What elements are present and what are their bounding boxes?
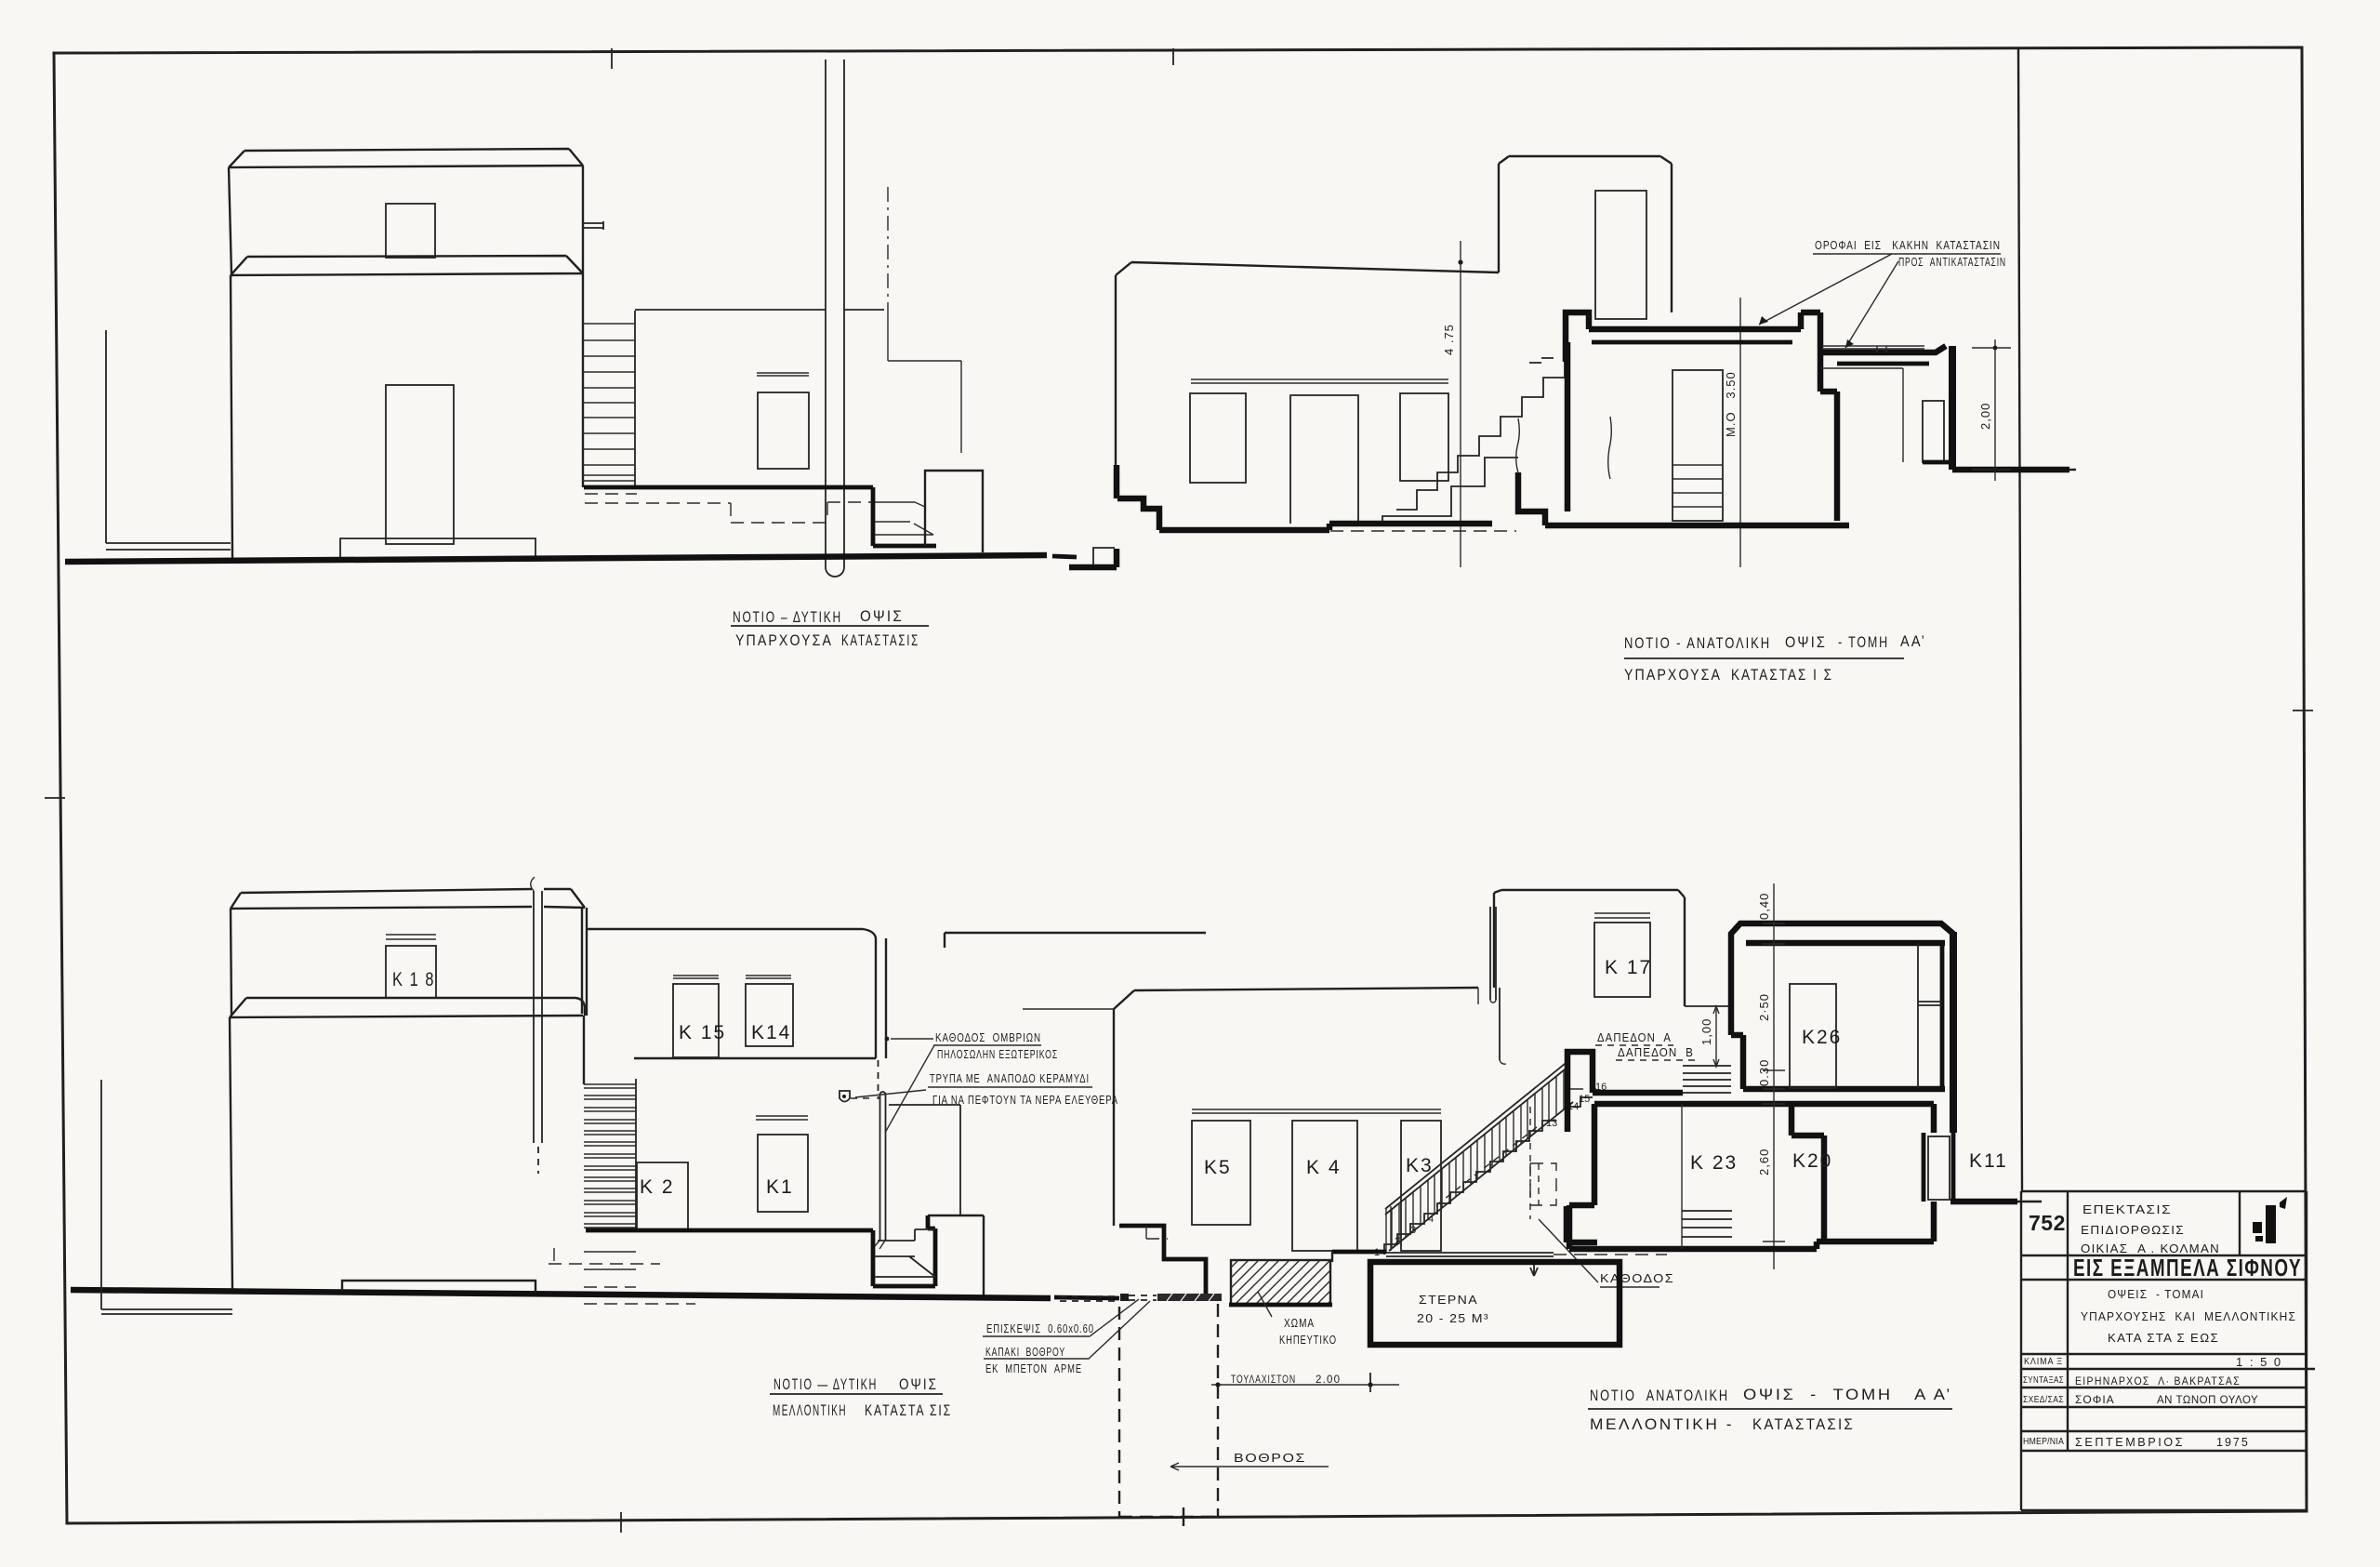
svg-text:ΟΨΕΙΣ - ΤΟΜΑΙ: ΟΨΕΙΣ - ΤΟΜΑΙ <box>2108 1288 2204 1301</box>
svg-text:ΥΠΑΡΧΟΥΣΑ: ΥΠΑΡΧΟΥΣΑ <box>1624 666 1722 684</box>
svg-text:ΟΨΙΣ - ΤΟΜΗ Α Α’: ΟΨΙΣ - ΤΟΜΗ Α Α’ <box>1743 1386 1952 1403</box>
svg-text:1975: 1975 <box>2216 1436 2250 1449</box>
svg-text:ΑΝ ΤΩΝΟΠ ΟΥΛΟΥ: ΑΝ ΤΩΝΟΠ ΟΥΛΟΥ <box>2157 1395 2258 1406</box>
svg-text:2: 2 <box>1395 1236 1400 1247</box>
svg-text:ΧΩΜΑ: ΧΩΜΑ <box>1284 1317 1315 1330</box>
svg-text:2·50: 2·50 <box>1757 993 1771 1021</box>
svg-text:20 - 25 M³: 20 - 25 M³ <box>1417 1312 1489 1325</box>
svg-text:ΚΑΠΑΚΙ ΒΟΘΡΟΥ: ΚΑΠΑΚΙ ΒΟΘΡΟΥ <box>985 1346 1065 1359</box>
svg-text:ΒΟΘΡΟΣ: ΒΟΘΡΟΣ <box>1234 1452 1306 1465</box>
svg-text:0,40: 0,40 <box>1757 893 1771 920</box>
svg-text:ΔΑΠΕΔΟΝ Α: ΔΑΠΕΔΟΝ Α <box>1597 1031 1672 1044</box>
svg-text:K 2: K 2 <box>640 1176 675 1198</box>
svg-text:K1: K1 <box>766 1176 794 1198</box>
svg-text:4 .75: 4 .75 <box>1442 324 1456 355</box>
svg-text:ΚΑΤΑΣΤΑΣ Ι Σ: ΚΑΤΑΣΤΑΣ Ι Σ <box>1731 666 1833 684</box>
svg-text:4: 4 <box>1428 1214 1434 1225</box>
svg-text:ΔΑΠΕΔΟΝ Β: ΔΑΠΕΔΟΝ Β <box>1618 1046 1694 1059</box>
svg-text:ΠΡΟΣ ΑΝΤΙΚΑΤΑΣΤΑΣΙΝ: ΠΡΟΣ ΑΝΤΙΚΑΤΑΣΤΑΣΙΝ <box>1898 256 2006 269</box>
svg-text:K11: K11 <box>1969 1150 2008 1172</box>
svg-text:ΜΕΛΛΟΝΤΙΚΗ: ΜΕΛΛΟΝΤΙΚΗ <box>773 1401 847 1419</box>
svg-text:ΣΕΠΤΕΜΒΡΙΟΣ: ΣΕΠΤΕΜΒΡΙΟΣ <box>2075 1436 2185 1449</box>
svg-text:ΚΑΘΟΔΟΣ ΟΜΒΡΙΩΝ: ΚΑΘΟΔΟΣ ΟΜΒΡΙΩΝ <box>935 1031 1041 1044</box>
svg-text:ΜΕΛΛΟΝΤΙΚΗ -: ΜΕΛΛΟΝΤΙΚΗ - <box>1590 1415 1734 1433</box>
svg-text:ΟΨΙΣ: ΟΨΙΣ <box>860 607 904 625</box>
svg-text:ΠΗΛΟΣΩΛΗΝ ΕΞΩΤΕΡΙΚΟΣ: ΠΗΛΟΣΩΛΗΝ ΕΞΩΤΕΡΙΚΟΣ <box>937 1048 1058 1061</box>
svg-text:ΤΡΥΠΑ ΜΕ ΑΝΑΠΟΔΟ ΚΕΡΑΜΥΔΙ: ΤΡΥΠΑ ΜΕ ΑΝΑΠΟΔΟ ΚΕΡΑΜΥΔΙ <box>930 1072 1090 1085</box>
svg-text:ΕΙΡΗΝΑΡΧΟΣ Λ· ΒΑΚΡΑΤΣΑΣ: ΕΙΡΗΝΑΡΧΟΣ Λ· ΒΑΚΡΑΤΣΑΣ <box>2075 1374 2241 1388</box>
svg-text:ΚΑΤΑ ΣΤΑ Σ ΕΩΣ: ΚΑΤΑ ΣΤΑ Σ ΕΩΣ <box>2108 1332 2219 1345</box>
svg-text:ΚΑΤΑΣΤΑΣΙΣ: ΚΑΤΑΣΤΑΣΙΣ <box>1752 1415 1855 1433</box>
svg-text:ΚΑΤΑΣΤΑ ΣΙΣ: ΚΑΤΑΣΤΑ ΣΙΣ <box>865 1401 952 1419</box>
svg-text:ΥΠΑΡΧΟΥΣΑ: ΥΠΑΡΧΟΥΣΑ <box>735 631 833 649</box>
svg-text:ΕΚ ΜΠΕΤΟΝ ΑΡΜΕ: ΕΚ ΜΠΕΤΟΝ ΑΡΜΕ <box>985 1362 1082 1375</box>
svg-text:K 4: K 4 <box>1306 1157 1342 1178</box>
svg-text:K 15: K 15 <box>679 1022 726 1043</box>
svg-text:ΚΛΙΜΑ Ξ: ΚΛΙΜΑ Ξ <box>2024 1356 2063 1367</box>
svg-text:ΣΤΕΡΝΑ: ΣΤΕΡΝΑ <box>1419 1294 1478 1307</box>
svg-text:ΟΨΙΣ: ΟΨΙΣ <box>899 1375 938 1393</box>
svg-text:15: 15 <box>1579 1094 1590 1105</box>
svg-text:ΟΡΟΦΑΙ ΕΙΣ ΚΑΚΗΝ ΚΑΤΑΣΤΑΣΙ: ΟΡΟΦΑΙ ΕΙΣ ΚΑΚΗΝ ΚΑΤΑΣΤΑΣΙΝ <box>1815 239 2001 252</box>
svg-text:K20: K20 <box>1792 1150 1832 1172</box>
svg-text:ΓΙΑ ΝΑ ΠΕΦΤΟΥΝ ΤΑ ΝΕΡΑ ΕΛΕΥΘΕΡ: ΓΙΑ ΝΑ ΠΕΦΤΟΥΝ ΤΑ ΝΕΡΑ ΕΛΕΥΘΕΡΑ <box>932 1094 1118 1107</box>
svg-text:ΕΠΕΚΤΑΣΙΣ: ΕΠΕΚΤΑΣΙΣ <box>2082 1203 2172 1216</box>
svg-text:ΗΜΕΡ/ΝΙΑ: ΗΜΕΡ/ΝΙΑ <box>2023 1436 2064 1447</box>
svg-text:ΚΗΠΕΥΤΙΚΟ: ΚΗΠΕΥΤΙΚΟ <box>1279 1334 1337 1347</box>
svg-text:13: 13 <box>1546 1118 1557 1129</box>
svg-text:0.30: 0.30 <box>1757 1059 1771 1086</box>
svg-text:K 1 8: K 1 8 <box>392 969 435 990</box>
svg-text:ΣΟΦΙΑ: ΣΟΦΙΑ <box>2075 1393 2115 1406</box>
svg-text:2,00: 2,00 <box>1978 403 1992 430</box>
svg-text:ΣΥΝΤΑΞΑΣ: ΣΥΝΤΑΞΑΣ <box>2023 1374 2064 1386</box>
svg-text:ΝΟΤΙΟ ΑΝΑΤΟΛΙΚΗ: ΝΟΤΙΟ ΑΝΑΤΟΛΙΚΗ <box>1590 1387 1729 1404</box>
svg-text:M.O 3.50: M.O 3.50 <box>1724 371 1738 437</box>
svg-text:K26: K26 <box>1802 1027 1842 1048</box>
svg-text:ΤΟΥΛΑΧΙΣΤΟΝ: ΤΟΥΛΑΧΙΣΤΟΝ <box>1231 1374 1296 1386</box>
svg-text:ΚΑΤΑΣΤΑΣΙΣ: ΚΑΤΑΣΤΑΣΙΣ <box>841 631 919 649</box>
svg-text:1 : 5 0: 1 : 5 0 <box>2236 1355 2282 1369</box>
svg-text:ΕΙΣ ΕΞΑΜΠΕΛΑ ΣΙΦΝΟΥ: ΕΙΣ ΕΞΑΜΠΕΛΑ ΣΙΦΝΟΥ <box>2073 1254 2302 1281</box>
svg-text:1,00: 1,00 <box>1699 1018 1713 1045</box>
svg-text:ΝΟΤΙΟ — ΔΥΤΙΚΗ: ΝΟΤΙΟ — ΔΥΤΙΚΗ <box>773 1375 878 1393</box>
svg-text:ΝΟΤΙΟ – ΔΥΤΙΚΗ: ΝΟΤΙΟ – ΔΥΤΙΚΗ <box>733 608 842 626</box>
svg-text:ΝΟΤΙΟ - ΑΝΑΤΟΛΙΚΗ: ΝΟΤΙΟ - ΑΝΑΤΟΛΙΚΗ <box>1624 634 1771 652</box>
svg-text:2,60: 2,60 <box>1757 1149 1771 1175</box>
svg-text:K5: K5 <box>1204 1157 1232 1178</box>
svg-text:ΚΑΘΟΔΟΣ: ΚΑΘΟΔΟΣ <box>1600 1272 1674 1285</box>
svg-text:ΕΠΙΣΚΕΨΙΣ 0.60x0.60: ΕΠΙΣΚΕΨΙΣ 0.60x0.60 <box>986 1322 1094 1335</box>
svg-text:ΥΠΑΡΧΟΥΣΗΣ ΚΑΙ ΜΕΛΛΟΝΤΙΚΗΣ: ΥΠΑΡΧΟΥΣΗΣ ΚΑΙ ΜΕΛΛΟΝΤΙΚΗΣ <box>2081 1310 2296 1323</box>
svg-text:3: 3 <box>1410 1225 1416 1236</box>
svg-text:ΕΠΙΔΙΟΡΘΩΣΙΣ: ΕΠΙΔΙΟΡΘΩΣΙΣ <box>2081 1224 2185 1237</box>
svg-text:K 17: K 17 <box>1605 957 1652 978</box>
svg-text:ΟΨΙΣ: ΟΨΙΣ <box>1785 633 1827 651</box>
svg-text:752: 752 <box>2029 1211 2066 1235</box>
svg-text:K 23: K 23 <box>1690 1152 1738 1174</box>
svg-text:ΑΑ’: ΑΑ’ <box>1900 632 1926 650</box>
svg-text:- ΤΟΜΗ: - ΤΟΜΗ <box>1838 633 1889 651</box>
svg-text:ΣΧΕΔ/ΣΑΣ: ΣΧΕΔ/ΣΑΣ <box>2023 1394 2064 1405</box>
svg-text:2.00: 2.00 <box>1316 1374 1341 1386</box>
svg-text:K14: K14 <box>751 1022 791 1043</box>
